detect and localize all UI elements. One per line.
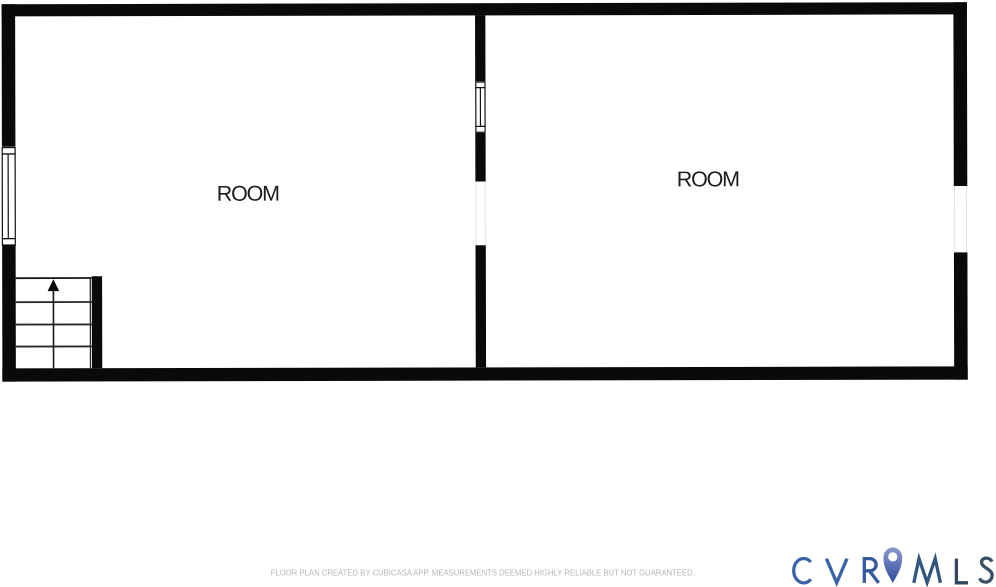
svg-text:ROOM: ROOM — [677, 167, 739, 191]
svg-text:FLOOR PLAN CREATED BY CUBICASA: FLOOR PLAN CREATED BY CUBICASA APP. MEAS… — [271, 568, 695, 578]
svg-text:ROOM: ROOM — [217, 182, 279, 206]
